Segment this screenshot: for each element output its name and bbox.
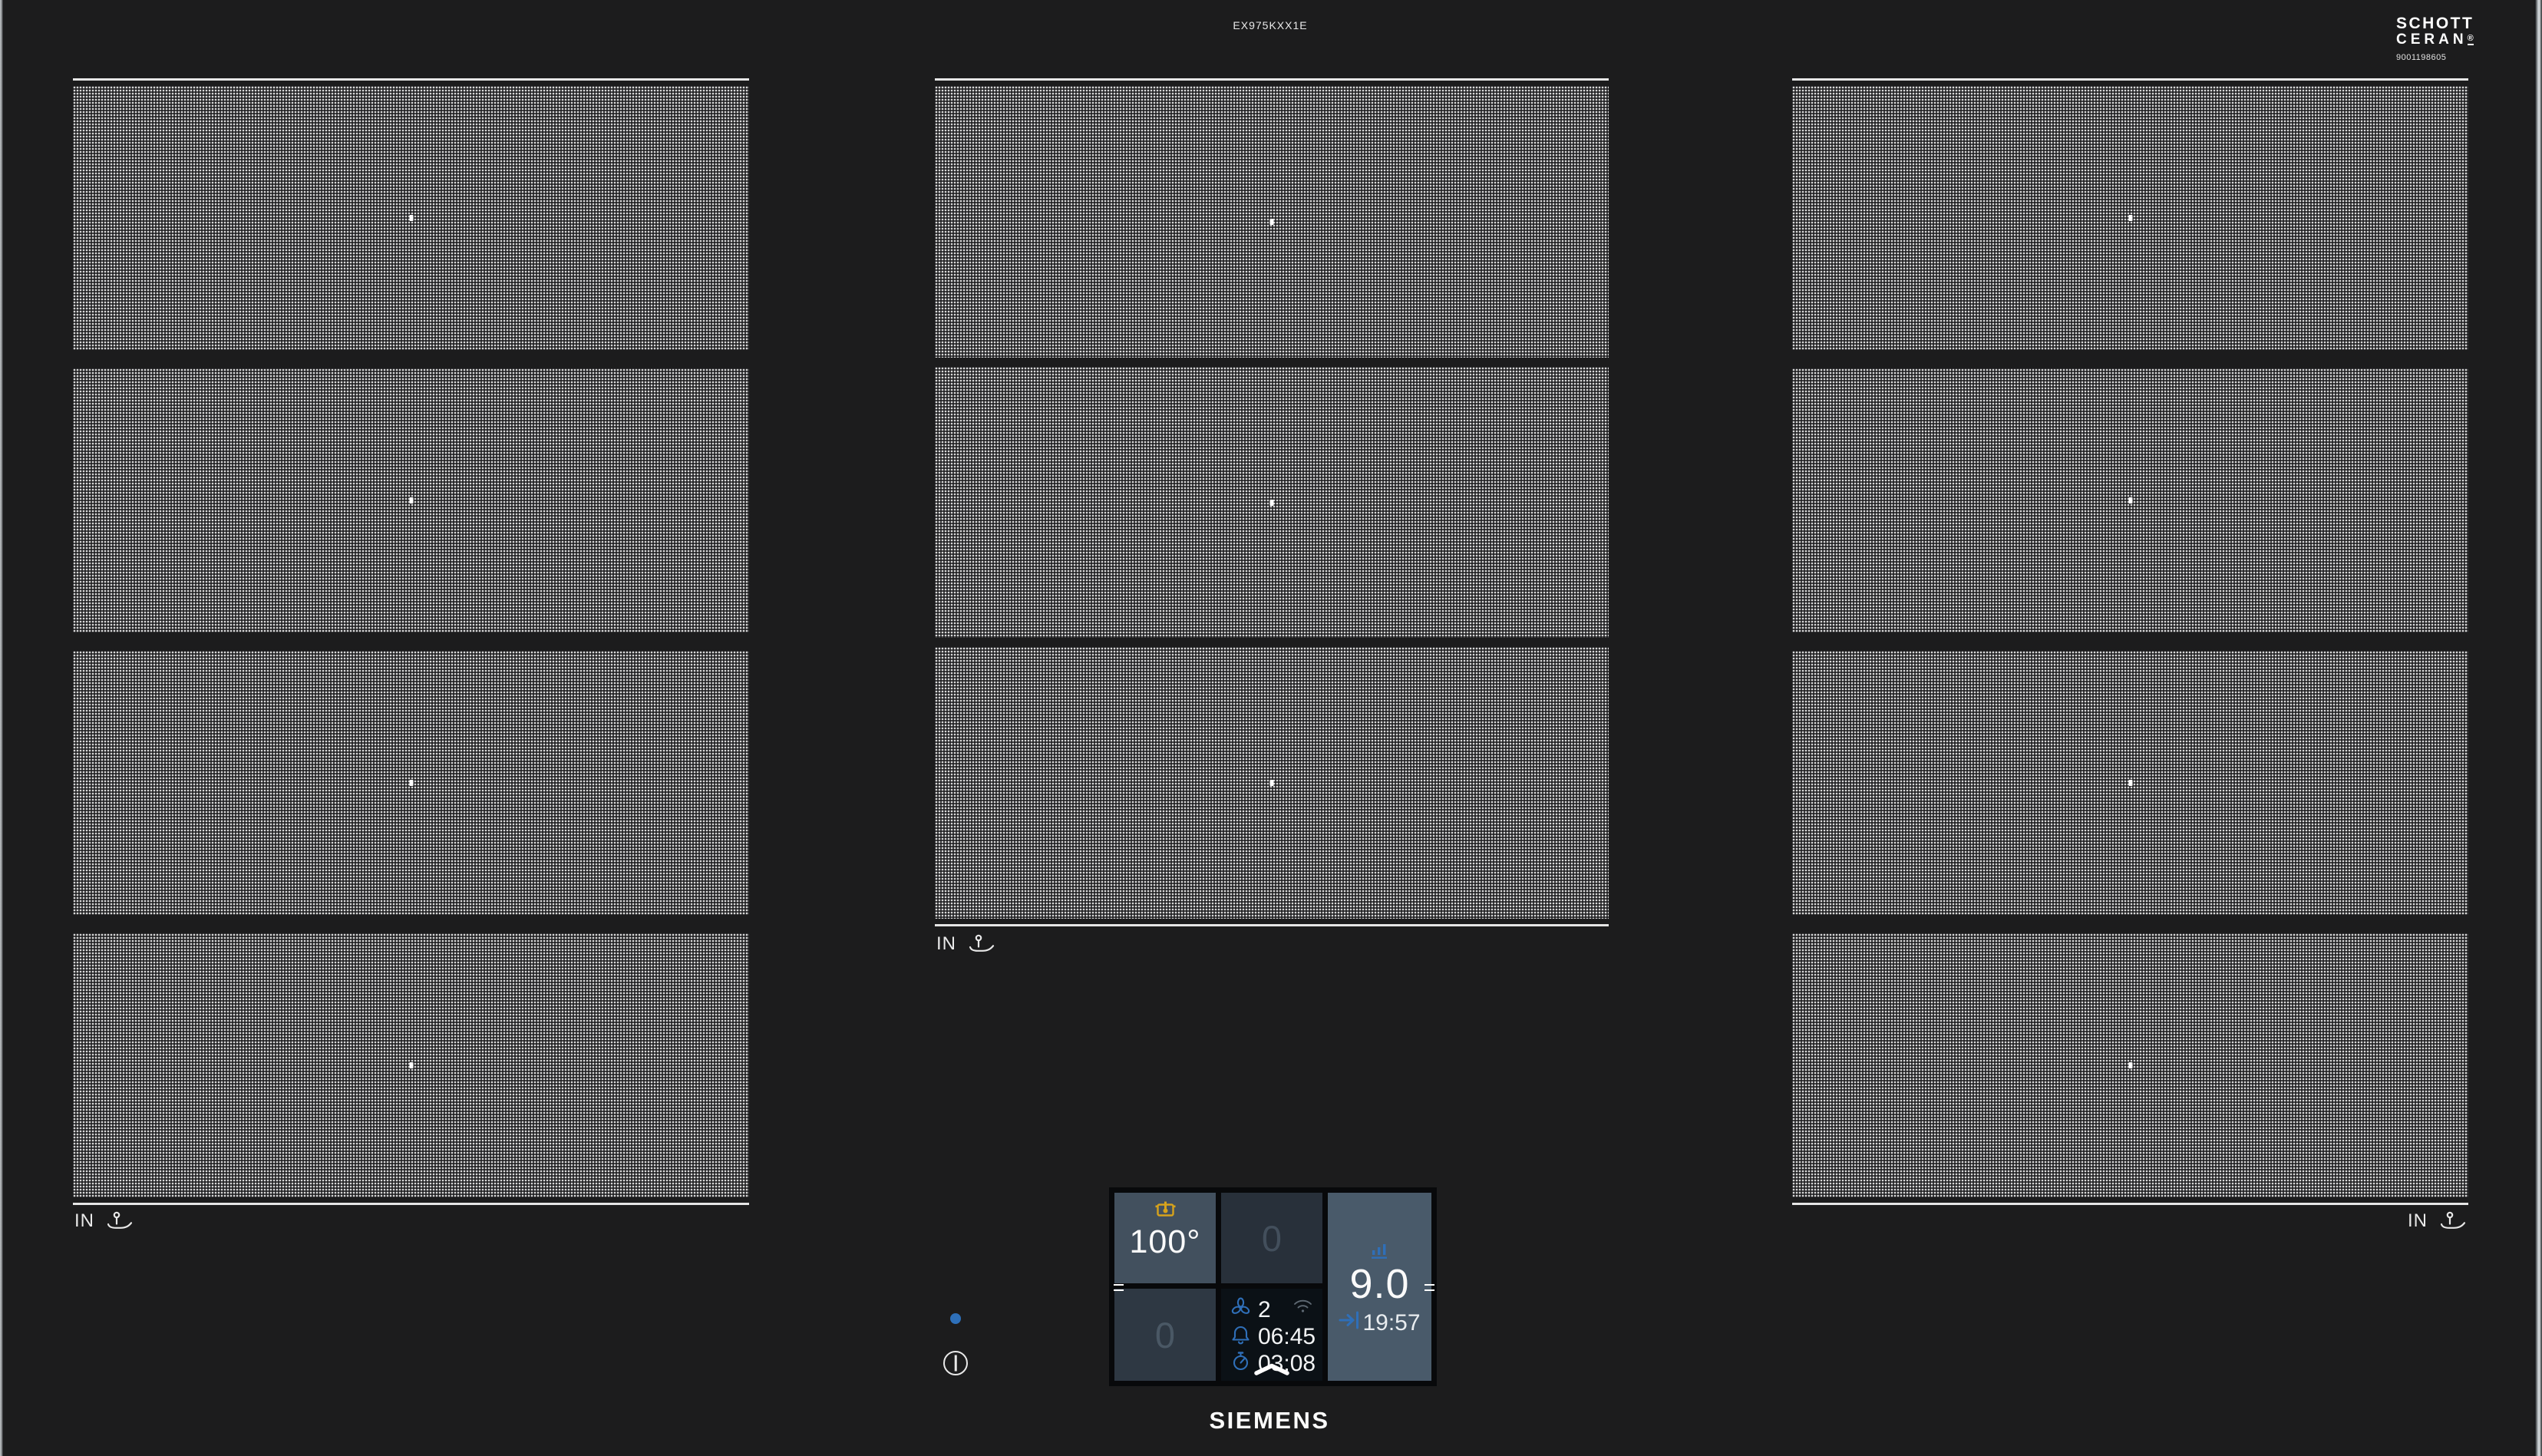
alarm-status-row[interactable]: 06:45 (1230, 1325, 1322, 1349)
zone-power-value: 0 (1262, 1217, 1282, 1260)
induction-marker-label: IN (74, 1210, 94, 1232)
alarm-time-value: 06:45 (1258, 1324, 1316, 1350)
schott-logo-text: SCHOTT (2396, 15, 2474, 32)
zone-segment[interactable] (73, 933, 749, 1197)
model-label: EX975KXX1E (1233, 19, 1307, 31)
zone-power-tile-inactive-bottom[interactable]: 0 (1114, 1289, 1216, 1381)
zone-center-dot (2128, 1062, 2132, 1068)
zone-center-dot (409, 1062, 413, 1068)
zone-center-dot (2128, 780, 2132, 786)
status-led (950, 1313, 961, 1324)
zone-center-dot (2128, 215, 2132, 221)
power-button[interactable] (943, 1351, 968, 1375)
zone-center-dot (1270, 219, 1274, 225)
time-to-end-icon (1339, 1309, 1362, 1337)
status-area: 2 06:45 (1221, 1289, 1322, 1381)
control-panel: 100° 0 0 9.0 (1109, 1187, 1437, 1386)
zone-center-dot (409, 497, 413, 503)
expand-chevron-icon[interactable] (1254, 1363, 1289, 1379)
wifi-icon (1292, 1298, 1313, 1318)
registered-mark: ® (2468, 34, 2474, 45)
zone-segment[interactable] (1792, 651, 2468, 915)
zone-power-tile-inactive-top[interactable]: 0 (1221, 1193, 1322, 1283)
pan-sensor-icon (2440, 1211, 2468, 1231)
zone-segment[interactable] (1792, 86, 2468, 350)
schott-ceran-logo: SCHOTT CERAN® 9001198605 (2396, 15, 2474, 63)
zone-center-dot (409, 215, 413, 221)
induction-marker-center: IN (936, 933, 996, 955)
end-time-value: 19:57 (1362, 1310, 1420, 1336)
glass-serial-number: 9001198605 (2396, 54, 2474, 63)
ceran-logo-text: CERAN® (2396, 32, 2474, 48)
power-level-bars-icon (1370, 1242, 1390, 1263)
power-level-value: 9.0 (1349, 1263, 1409, 1306)
temp-zone-tile[interactable]: 100° (1114, 1193, 1216, 1283)
temp-value: 100° (1130, 1223, 1201, 1261)
glass-edge-left (0, 0, 3, 1456)
zone-center-dot (1270, 500, 1274, 506)
cooking-zone-right[interactable] (1792, 78, 2468, 1205)
zone-segment[interactable] (1792, 368, 2468, 632)
cooktop-surface: EX975KXX1E SCHOTT CERAN® 9001198605 IN I… (0, 0, 2542, 1456)
zone-center-dot (409, 780, 413, 786)
pan-sensor-icon (107, 1211, 134, 1231)
zone-segment[interactable] (73, 651, 749, 915)
pot-sensor-icon (1155, 1200, 1176, 1223)
cooking-zone-left[interactable] (73, 78, 749, 1205)
stopwatch-icon (1230, 1351, 1251, 1378)
zone-segment[interactable] (73, 86, 749, 350)
fan-level-value: 2 (1258, 1297, 1271, 1323)
zone-segment[interactable] (935, 367, 1609, 639)
siemens-logo: SIEMENS (1209, 1407, 1329, 1435)
zone-segment[interactable] (935, 647, 1609, 919)
glass-edge-right (2533, 0, 2542, 1456)
induction-marker-label: IN (2408, 1210, 2428, 1232)
slider-handle-left-icon[interactable] (1114, 1284, 1124, 1291)
zone-segment[interactable] (935, 86, 1609, 358)
active-zone-power-tile[interactable]: 9.0 19:57 (1328, 1193, 1431, 1381)
slider-handle-right-icon[interactable] (1425, 1284, 1434, 1291)
pan-sensor-icon (969, 934, 996, 954)
induction-marker-left: IN (74, 1210, 134, 1232)
induction-marker-right: IN (2408, 1210, 2468, 1232)
zone-segment[interactable] (1792, 933, 2468, 1197)
zone-segment[interactable] (73, 368, 749, 632)
bell-icon (1230, 1324, 1251, 1351)
fan-icon (1230, 1297, 1251, 1324)
zone-center-dot (2128, 497, 2132, 503)
zone-power-value: 0 (1155, 1314, 1175, 1356)
induction-marker-label: IN (936, 933, 956, 955)
cooking-zone-center[interactable] (935, 78, 1609, 926)
zone-center-dot (1270, 780, 1274, 786)
